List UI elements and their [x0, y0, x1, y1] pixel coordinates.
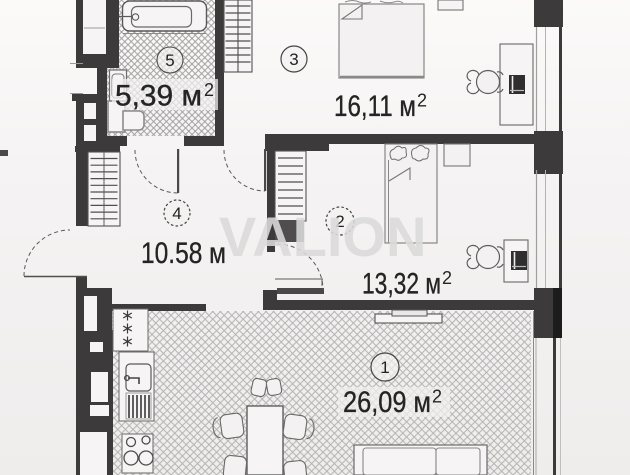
svg-text:2: 2 — [417, 91, 427, 111]
svg-text:3: 3 — [289, 50, 298, 69]
svg-text:2: 2 — [204, 80, 214, 100]
svg-text:16,11 м: 16,11 м — [334, 90, 416, 123]
svg-text:5: 5 — [165, 51, 174, 70]
svg-text:VALION: VALION — [219, 205, 426, 268]
svg-text:10.58 м: 10.58 м — [141, 237, 226, 270]
svg-text:1: 1 — [380, 358, 389, 377]
svg-text:2: 2 — [432, 387, 442, 407]
svg-text:26,09 м: 26,09 м — [343, 386, 431, 419]
svg-text:4: 4 — [172, 204, 181, 223]
svg-text:2: 2 — [442, 268, 452, 288]
svg-text:13,32 м: 13,32 м — [362, 268, 441, 301]
svg-text:5,39 м: 5,39 м — [115, 80, 202, 113]
